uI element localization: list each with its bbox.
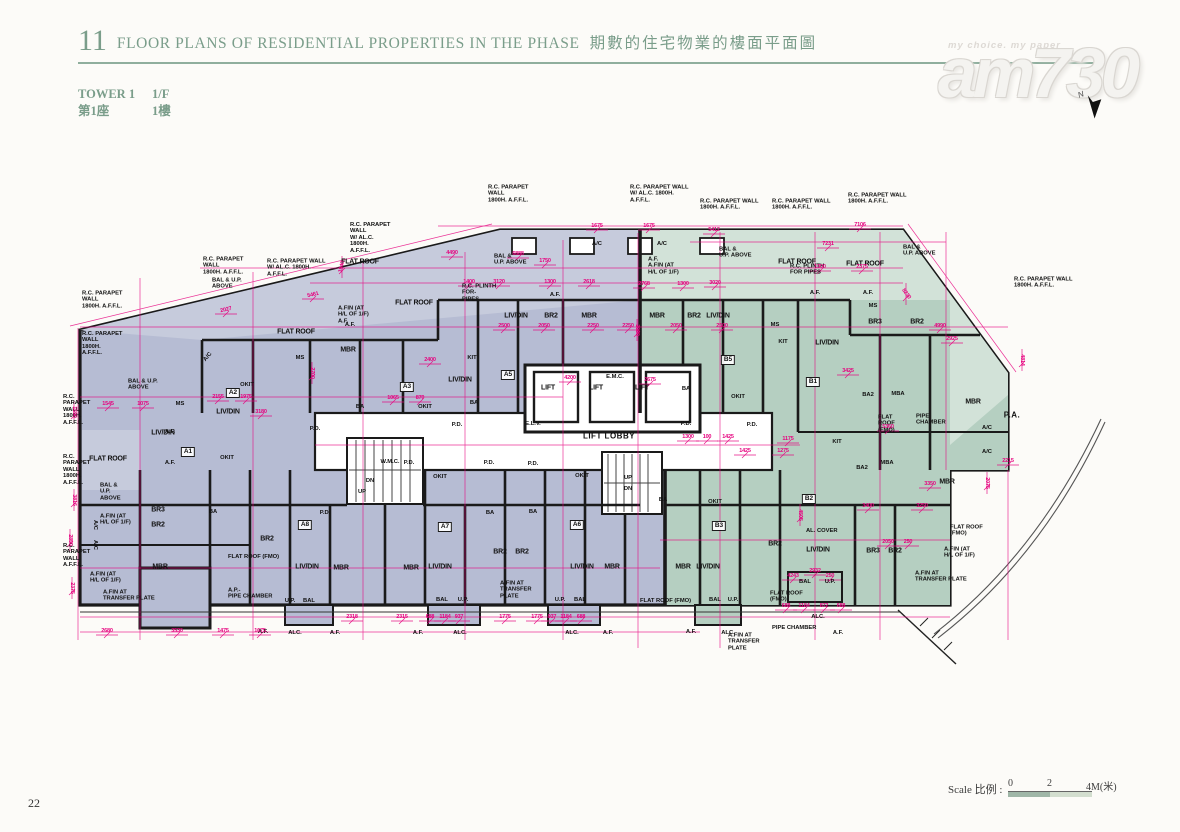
plan-small-label: ALC. <box>811 614 825 620</box>
plan-small-label: BAL <box>303 598 315 604</box>
plan-small-label: A.F. <box>603 630 613 636</box>
plan-small-label: MS <box>176 401 185 407</box>
room-label: LIV/DIN <box>570 564 594 571</box>
plan-small-label: ALC. <box>565 630 579 636</box>
unit-badge-A7: A7 <box>438 522 452 532</box>
plan-small-label: P.D. <box>320 510 331 516</box>
plan-annotation: R.C. PARAPET WALL 1800H. A.F.F.L. <box>848 193 907 206</box>
plan-small-label: A.F. <box>810 290 820 296</box>
room-label: MBR <box>340 347 355 354</box>
room-label: FLAT ROOF <box>89 456 127 463</box>
room-label: MBR <box>581 313 596 320</box>
unit-badge-B3: B3 <box>712 521 726 531</box>
room-label: LIV/DIN <box>806 547 830 554</box>
plan-small-label: A/C <box>592 241 602 247</box>
plan-small-label: P.D. <box>681 421 692 427</box>
dimension-label: 1775 <box>531 614 542 620</box>
dimension-label: 1545 <box>102 401 113 407</box>
dimension-label: 2375 <box>69 582 75 593</box>
plan-label-overlay: LIV/DINLIV/DINLIV/DINLIV/DINLIV/DINLIV/D… <box>0 0 1180 832</box>
plan-small-label: KIT <box>832 439 841 445</box>
plan-annotation: FLAT ROOF (FMO) <box>950 525 983 538</box>
unit-badge-A5: A5 <box>501 370 515 380</box>
dimension-label: 2500 <box>498 323 509 329</box>
unit-badge-A6: A6 <box>570 520 584 530</box>
plan-annotation: R.C. PLINTH FOR- PIPES <box>462 283 496 302</box>
area-label: P.A. <box>1004 411 1021 420</box>
room-label: BR2 <box>515 549 528 556</box>
dimension-label: 5461 <box>307 291 319 299</box>
room-label: BR2 <box>151 522 164 529</box>
dimension-label: 3020 <box>709 280 720 286</box>
dimension-label: 688 <box>837 603 846 609</box>
plan-small-label: UP <box>358 489 366 495</box>
plan-small-label: A/C <box>982 425 992 431</box>
plan-small-label: A/C <box>202 351 213 363</box>
dimension-label: 3120 <box>493 279 504 285</box>
room-label: LIFT <box>589 385 603 392</box>
room-label: LIFT <box>635 385 649 392</box>
plan-small-label: BA <box>529 509 537 515</box>
plan-small-label: MBA <box>891 391 904 397</box>
plan-small-label: U.P. <box>458 597 469 603</box>
plan-annotation: A.FIN (AT H/L OF 1/F) <box>944 547 975 560</box>
dimension-label: 2700 <box>309 367 315 378</box>
plan-small-label: BAL <box>436 597 448 603</box>
plan-small-label: OKIT <box>220 455 234 461</box>
dimension-label: 3816 <box>71 494 77 505</box>
plan-small-label: BA2 <box>856 465 868 471</box>
plan-small-label: OKIT <box>708 499 722 505</box>
dimension-label: 2315 <box>396 614 407 620</box>
dimension-label: 1940 <box>338 261 347 274</box>
dimension-label: 1175 <box>782 436 793 442</box>
room-label: BR3 <box>866 548 879 555</box>
dimension-label: 5412 <box>708 227 719 233</box>
plan-small-label: A.F. <box>165 460 175 466</box>
dimension-label: 1675 <box>254 628 265 634</box>
plan-small-label: A/C <box>982 449 992 455</box>
unit-badge-A2: A2 <box>226 388 240 398</box>
dimension-label: 1400 <box>463 279 474 285</box>
dimension-label: 2027 <box>220 306 232 314</box>
dimension-label: 1425 <box>722 434 733 440</box>
plan-annotation: R.C. PARAPET WALL W/ AL.C. 1800H. A.F.F.… <box>350 222 390 254</box>
dimension-label: 1184 <box>798 603 809 609</box>
dimension-label: 2050 <box>670 323 681 329</box>
dimension-label: 250 <box>904 539 913 545</box>
plan-small-label: BA <box>659 497 667 503</box>
plan-small-label: BA <box>356 404 364 410</box>
scale-bar-segment-light <box>1050 792 1092 797</box>
plan-small-label: P.D. <box>404 460 415 466</box>
dimension-label: 4243 <box>787 573 798 579</box>
room-label: LIV/DIN <box>428 564 452 571</box>
plan-annotation: R.C. PARAPET WALL W/ AL.C. 1800H. A.F.F.… <box>630 184 689 203</box>
plan-small-label: A.F. <box>413 630 423 636</box>
dimension-label: 2050 <box>882 539 893 545</box>
plan-annotation: A.P.- PIPE CHAMBER <box>228 588 272 601</box>
plan-small-label: A.F. <box>550 292 560 298</box>
room-label: MBR <box>403 565 418 572</box>
dimension-label: 2925 <box>946 336 957 342</box>
dimension-label: 1475 <box>217 628 228 634</box>
dimension-label: 1300 <box>682 434 693 440</box>
plan-small-label: A/C <box>92 540 98 550</box>
plan-small-label: P.D. <box>747 422 758 428</box>
room-label: LIV/DIN <box>295 564 319 571</box>
dimension-label: 1300 <box>814 264 825 270</box>
dimension-label: 3080 <box>634 324 640 335</box>
dimension-label: 4490 <box>446 250 457 256</box>
plan-annotation: BAL & U.P. ABOVE <box>903 245 936 258</box>
dimension-label: 2850 <box>67 534 73 545</box>
scale-label-zh: 比例 <box>975 784 997 796</box>
scale-tick-2: 2 <box>1047 778 1052 789</box>
plan-small-label: KIT <box>778 339 787 345</box>
plan-annotation: A.FIN AT TRANSFER PLATE <box>728 632 760 651</box>
plan-annotation: R.C. PARAPET WALL 1800H. A.F.F.L. <box>82 331 122 357</box>
plan-annotation: R.C. PARAPET WALL 1800H. A.F.F.L. <box>700 199 759 212</box>
dimension-label: 4990 <box>934 323 945 329</box>
plan-small-label: MS <box>771 322 780 328</box>
plan-small-label: A.F. <box>330 630 340 636</box>
dimension-label: 1675 <box>643 223 654 229</box>
plan-small-label: E.M.C. <box>606 374 624 380</box>
room-label: BR2 <box>260 536 273 543</box>
room-label: FLAT ROOF <box>341 259 379 266</box>
room-label: BR2 <box>888 548 901 555</box>
dimension-label: 8230 <box>900 288 912 301</box>
plan-small-label: OKIT <box>240 382 254 388</box>
room-label: LIV/DIN <box>696 564 720 571</box>
dimension-label: 100 <box>703 434 712 440</box>
dimension-label: 2250 <box>587 323 598 329</box>
scale-tick-0: 0 <box>1008 778 1013 789</box>
dimension-label: 6888 <box>512 251 523 257</box>
plan-small-label: W.M.C. <box>381 459 400 465</box>
dimension-label: 4200 <box>564 375 575 381</box>
plan-annotation: A.FIN (AT H/L OF 1/F) <box>90 572 121 585</box>
dimension-label: 1775 <box>499 614 510 620</box>
plan-small-label: OKIT <box>433 474 447 480</box>
dimension-label: 5360 <box>882 424 893 430</box>
plan-annotation: R.C. PARAPET WALL 1800H. A.F.F.L. <box>1014 277 1073 290</box>
dimension-label: 2618 <box>583 279 594 285</box>
dimension-label: 1300 <box>677 281 688 287</box>
area-label: LIFT LOBBY <box>583 432 635 441</box>
plan-small-label: U.P. <box>728 597 739 603</box>
unit-badge-A3: A3 <box>400 382 414 392</box>
room-label: MBR <box>939 479 954 486</box>
plan-small-label: DN <box>366 478 374 484</box>
unit-badge-A8: A8 <box>298 520 312 530</box>
dimension-label: 2215 <box>1002 458 1013 464</box>
plan-annotation: A.FIN (AT H/L OF 1/F) A.F. <box>338 305 369 324</box>
scale-bar-graphic: 0 2 4M(米) <box>1008 778 1138 800</box>
unit-badge-A1: A1 <box>181 447 195 457</box>
unit-badge-B1: B1 <box>806 377 820 387</box>
dimension-label: 7231 <box>822 241 833 247</box>
room-label: MBR <box>152 564 167 571</box>
dimension-label: 2250 <box>622 323 633 329</box>
room-label: BR2 <box>493 549 506 556</box>
room-label: BR3 <box>868 319 881 326</box>
plan-annotation: FLAT ROOF (FMO) <box>770 591 803 604</box>
plan-small-label: A.F. <box>686 629 696 635</box>
scale-bar: Scale 比例 : 0 2 4M(米) <box>948 780 1148 798</box>
plan-small-label: P.D. <box>484 460 495 466</box>
plan-small-label: A.F. <box>863 290 873 296</box>
dimension-label: 688 <box>782 603 791 609</box>
plan-small-label: BAL <box>574 597 586 603</box>
dimension-label: 2075 <box>984 477 990 488</box>
plan-small-label: P.D. <box>528 461 539 467</box>
unit-badge-B2: B2 <box>802 494 816 504</box>
plan-small-label: UP <box>624 475 632 481</box>
plan-annotation: BAL & U.P. ABOVE <box>100 482 121 501</box>
room-label: LIV/DIN <box>706 313 730 320</box>
plan-annotation: A.FIN (AT H/L OF 1/F) <box>100 514 131 527</box>
dimension-label: 872 <box>820 603 829 609</box>
dimension-label: 250 <box>826 573 835 579</box>
plan-annotation: R.C. PARAPET WALL 1800H. A.F.F.L. <box>82 290 122 309</box>
dimension-label: 3425 <box>842 368 853 374</box>
plan-annotation: A.FIN AT TRANSFER PLATE <box>500 580 532 599</box>
dimension-label: 2400 <box>424 357 435 363</box>
dimension-label: 1675 <box>591 223 602 229</box>
plan-annotation: AL. COVER <box>806 528 838 534</box>
plan-annotation: PIPE CHAMBER <box>916 414 946 427</box>
room-label: MBR <box>604 564 619 571</box>
room-label: BR3 <box>151 507 164 514</box>
dimension-label: 2768 <box>638 281 649 287</box>
dimension-label: 2932 <box>809 568 820 574</box>
dimension-label: 688 <box>577 614 586 620</box>
dimension-label: 1065 <box>387 395 398 401</box>
plan-annotation: BAL & U.P. ABOVE <box>128 379 158 392</box>
dimension-label: 3350 <box>924 481 935 487</box>
plan-small-label: P.D. <box>452 422 463 428</box>
plan-small-label: E.L.V. <box>525 421 541 427</box>
plan-annotation: A.F. A.FIN (AT H/L OF 1/F) <box>648 256 679 275</box>
scale-bar-segment-dark <box>1008 792 1050 797</box>
plan-small-label: MBA <box>880 460 893 466</box>
dimension-label: 870 <box>416 395 425 401</box>
dimension-label: 4505 <box>797 509 803 520</box>
dimension-label: 937 <box>455 614 464 620</box>
unit-badge-B5: B5 <box>721 355 735 365</box>
dimension-label: 2675 <box>644 377 655 383</box>
plan-annotation: BAL & U.P. ABOVE <box>719 247 752 260</box>
plan-small-label: A/C <box>92 520 98 530</box>
plan-small-label: U.P. <box>825 579 836 585</box>
plan-small-label: OKIT <box>731 394 745 400</box>
plan-annotation: A.FIN AT TRANSFER PLATE <box>915 571 967 584</box>
plan-small-label: BA2 <box>862 392 874 398</box>
dimension-label: 3400 <box>862 503 873 509</box>
plan-small-label: KIT <box>467 355 476 361</box>
dimension-label: 3250 <box>916 503 927 509</box>
plan-small-label: OKIT <box>418 404 432 410</box>
dimension-label: 688 <box>426 614 435 620</box>
plan-small-label: MS <box>869 303 878 309</box>
room-label: BR2 <box>768 541 781 548</box>
room-label: MBR <box>675 564 690 571</box>
room-label: FLAT ROOF <box>277 329 315 336</box>
room-label: MBR <box>333 565 348 572</box>
dimension-label: 1975 <box>240 394 251 400</box>
dimension-label: 2050 <box>538 323 549 329</box>
dimension-label: 1184 <box>439 614 450 620</box>
dimension-label: 2680 <box>101 628 112 634</box>
plan-annotation: R.C. PARAPET WALL A.F.F.L. <box>63 543 90 569</box>
plan-small-label: A.F. <box>833 630 843 636</box>
dimension-label: 1425 <box>739 448 750 454</box>
plan-small-label: A.F. <box>165 429 175 435</box>
dimension-label: 2318 <box>346 614 357 620</box>
dimension-label: 937 <box>548 614 557 620</box>
dimension-label: 2155 <box>212 394 223 400</box>
plan-annotation: A.FIN AT TRANSFER PLATE <box>103 590 155 603</box>
plan-annotation: R.C. PARAPET WALL 1800H. A.F.F.L. <box>203 256 243 275</box>
plan-annotation: PIPE CHAMBER <box>772 625 816 631</box>
plan-small-label: P.D. <box>310 426 321 432</box>
dimension-label: 3530 <box>171 628 182 634</box>
plan-small-label: ALC. <box>288 630 302 636</box>
plan-small-label: U.P. <box>555 597 566 603</box>
room-label: LIV/DIN <box>815 340 839 347</box>
dimension-label: 2375 <box>856 264 867 270</box>
plan-small-label: BA <box>682 386 690 392</box>
room-label: BR2 <box>910 319 923 326</box>
room-label: BR2 <box>544 313 557 320</box>
plan-annotation: R.C. PARAPET WALL 1800H. A.F.F.L. <box>772 199 831 212</box>
dimension-label: 1590 <box>71 406 77 417</box>
plan-small-label: DN <box>624 486 632 492</box>
plan-small-label: BA <box>486 510 494 516</box>
room-label: MBR <box>965 399 980 406</box>
plan-annotation: R.C. PARAPET WALL 1800H. A.F.F.L. <box>63 454 90 486</box>
plan-small-label: BAL <box>709 597 721 603</box>
plan-small-label: ALC. <box>453 630 467 636</box>
brochure-page: { "header": { "section_no": "11", "title… <box>0 0 1180 832</box>
dimension-label: 7106 <box>854 222 865 228</box>
dimension-label: 1750 <box>539 258 550 264</box>
dimension-label: 2500 <box>716 323 727 329</box>
dimension-label: 1275 <box>777 448 788 454</box>
room-label: BR2 <box>687 313 700 320</box>
dimension-label: 1300 <box>544 279 555 285</box>
room-label: FLAT ROOF <box>395 300 433 307</box>
room-label: LIV/DIN <box>504 313 528 320</box>
dimension-label: 1184 <box>560 614 571 620</box>
room-label: LIV/DIN <box>216 409 240 416</box>
dimension-label: 4814 <box>1019 354 1025 365</box>
plan-small-label: OKIT <box>575 473 589 479</box>
plan-annotation: FLAT ROOF (FMO) <box>228 554 279 560</box>
scale-label-en: Scale <box>948 784 972 796</box>
plan-small-label: MS <box>296 355 305 361</box>
plan-annotation: R.C. PARAPET WALL W/ AL.C. 1800H. A.F.F.… <box>267 258 326 277</box>
plan-small-label: BAL <box>799 579 811 585</box>
plan-small-label: BA <box>470 400 478 406</box>
room-label: LIV/DIN <box>448 377 472 384</box>
plan-annotation: R.C. PARAPET WALL 1800H. A.F.F.L. <box>488 184 528 203</box>
dimension-label: 1075 <box>137 401 148 407</box>
plan-small-label: U.P. <box>285 598 296 604</box>
room-label: LIFT <box>541 385 555 392</box>
page-number: 22 <box>28 796 40 811</box>
room-label: MBR <box>649 313 664 320</box>
plan-small-label: BA <box>209 509 217 515</box>
plan-annotation: FLAT ROOF (FMO) <box>640 598 691 604</box>
dimension-label: 3180 <box>255 409 266 415</box>
plan-small-label: A/C <box>657 241 667 247</box>
plan-annotation: BAL & U.P. ABOVE <box>212 278 242 291</box>
